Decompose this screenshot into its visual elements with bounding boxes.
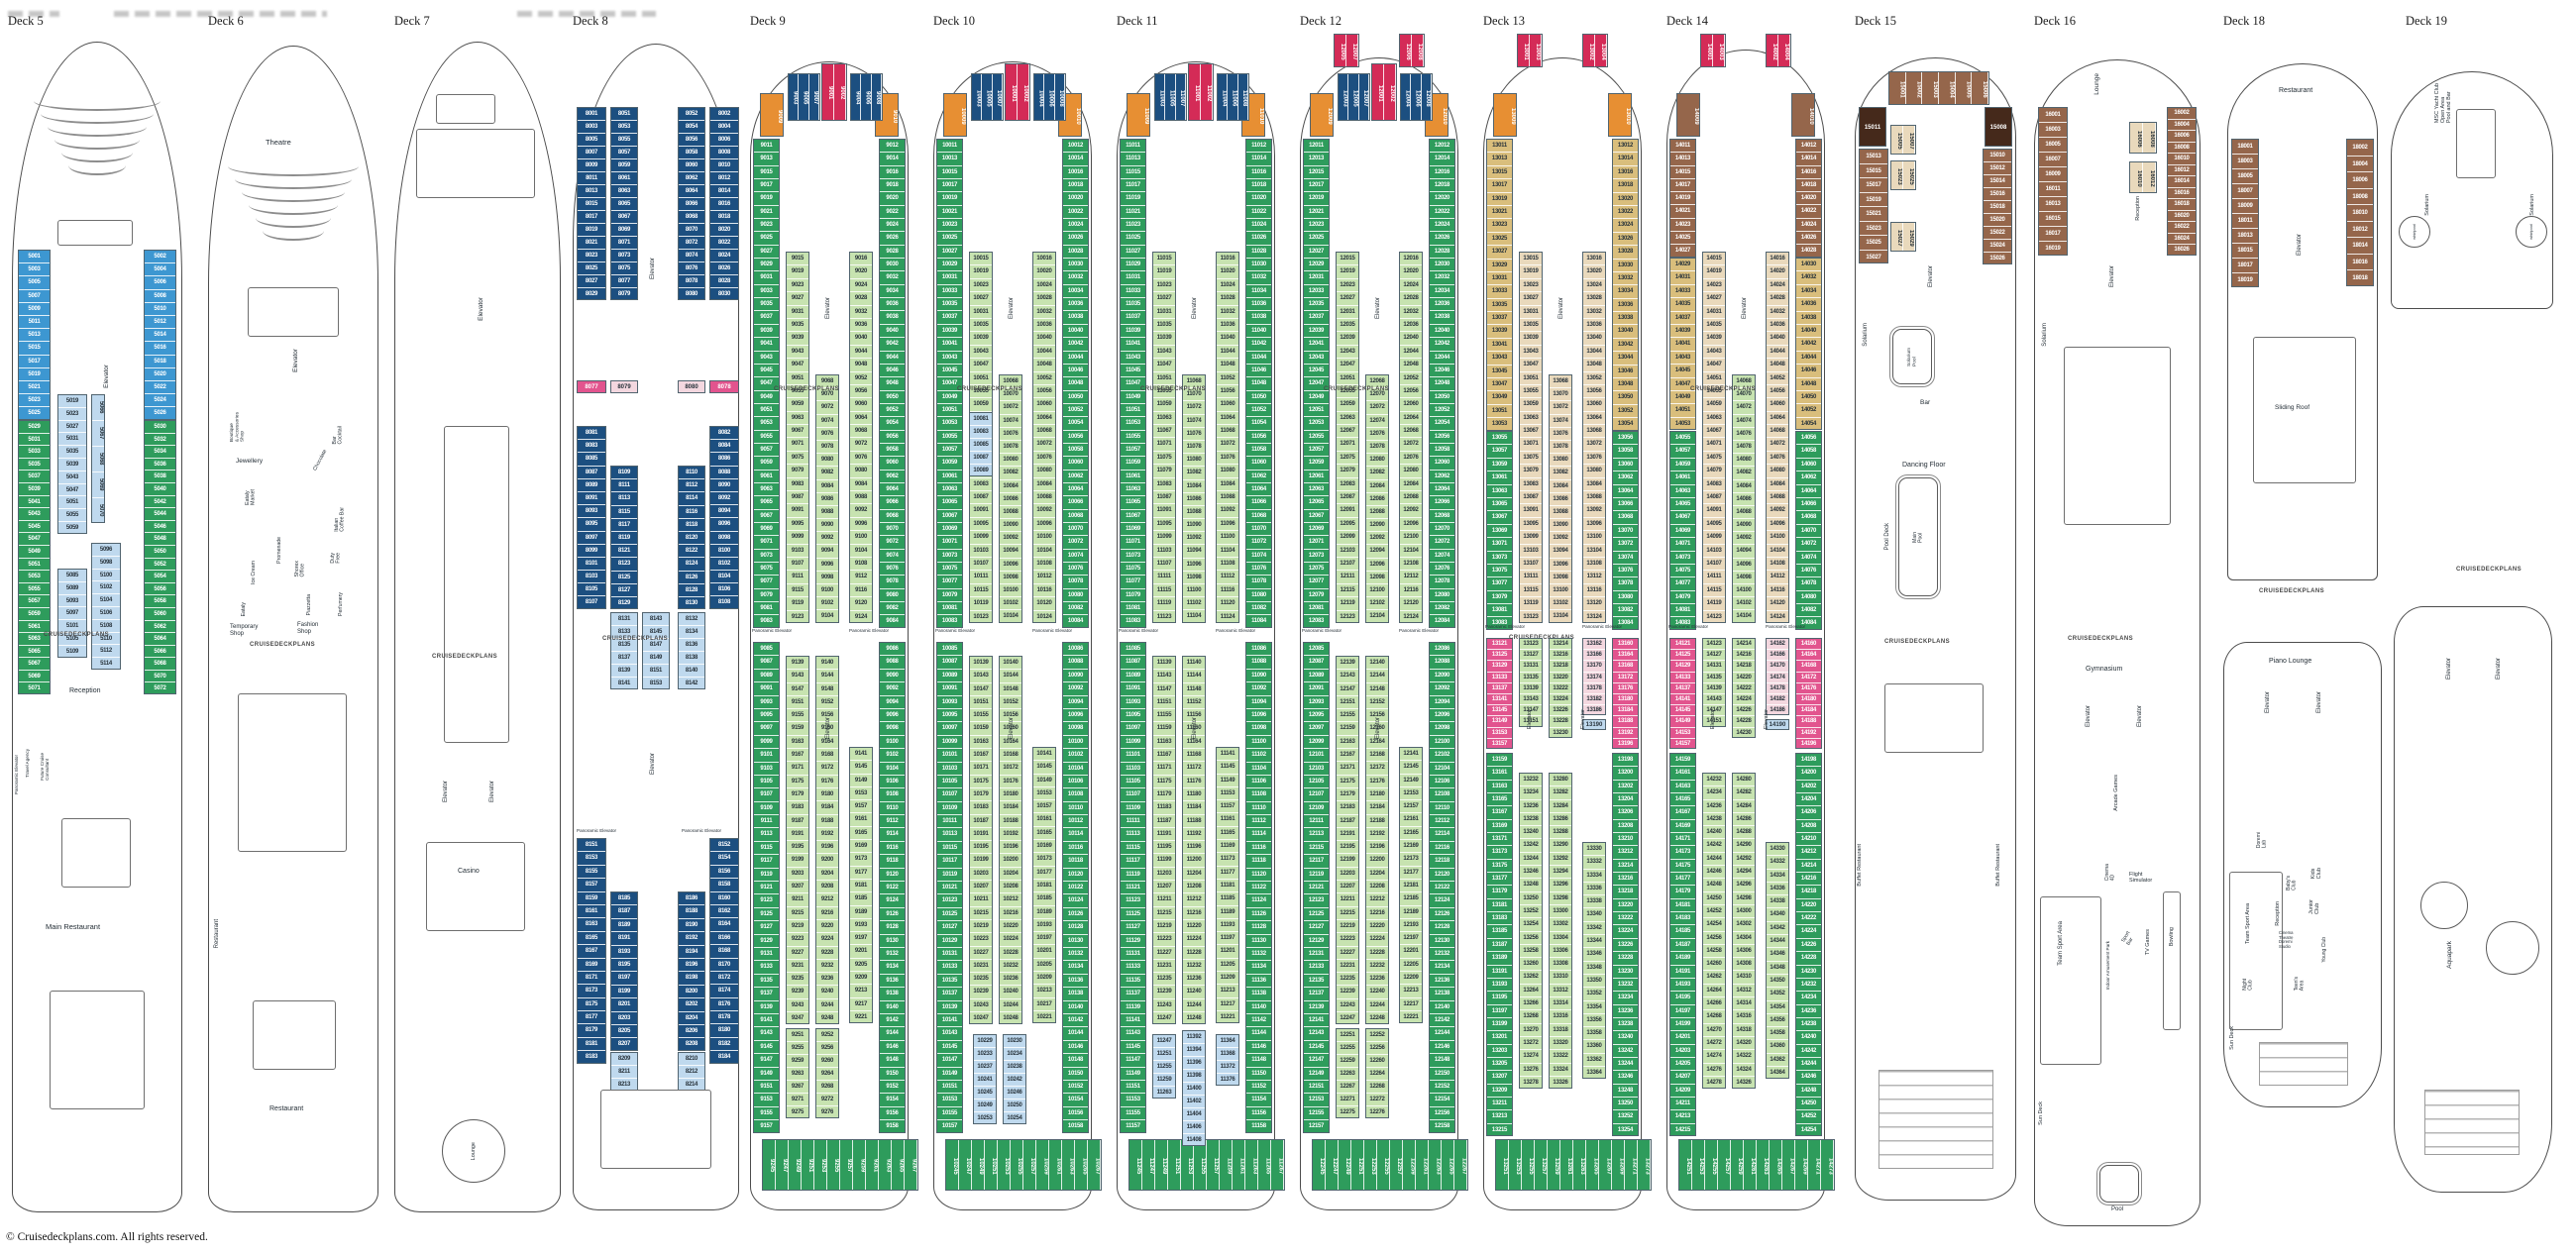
deck-12-cabin: 12009 bbox=[1310, 93, 1334, 137]
deck-10-area-label: Panoramic Elevator bbox=[1032, 628, 1072, 633]
deck-19-round-structure: whirlpool bbox=[2516, 216, 2547, 248]
deck-9-cabin: 9073 bbox=[754, 550, 779, 563]
deck-10-cabin: 10087 bbox=[970, 491, 992, 504]
deck-9-cabin-strip: 9251925592599263926792719275 bbox=[786, 1028, 809, 1118]
deck-13-cabin: 13342 bbox=[1583, 922, 1605, 935]
deck-14-cabin: 14084 bbox=[1767, 478, 1788, 491]
deck-14-cabin: 14183 bbox=[1670, 912, 1695, 925]
deck-8-cabin: 8055 bbox=[611, 134, 637, 147]
deck-13-cabin: 13187 bbox=[1487, 939, 1512, 952]
deck-13-cabin: 13080 bbox=[1583, 465, 1605, 477]
deck-10-cabin: 10267 bbox=[1088, 1140, 1101, 1190]
deck-13-cabin: 13043 bbox=[1487, 352, 1512, 365]
deck-6-watermark: CRUISEDECKPLANS bbox=[250, 642, 315, 648]
deck-12-cabin: 12066 bbox=[1430, 496, 1454, 509]
deck-13-cabin: 13049 bbox=[1487, 391, 1512, 404]
deck-11-cabin: 11056 bbox=[1246, 431, 1271, 444]
deck-13-cabin: 13037 bbox=[1487, 312, 1512, 325]
deck-9-area-label: Elevator bbox=[825, 297, 832, 319]
deck-8-cabin: 8169 bbox=[578, 959, 605, 972]
deck-12-cabin: 12147 bbox=[1337, 683, 1358, 696]
deck-13-cabin: 13047 bbox=[1487, 378, 1512, 391]
deck-5-cabin: 5020 bbox=[145, 368, 175, 381]
deck-12-cabin: 12015 bbox=[1337, 253, 1358, 265]
deck-10-cabin: 10171 bbox=[970, 762, 992, 775]
deck-12-cabin: 12082 bbox=[1430, 602, 1454, 615]
deck-13-cabin: 13164 bbox=[1613, 650, 1638, 661]
copyright-footer: © Cruisedeckplans.com. All rights reserv… bbox=[6, 1231, 208, 1243]
deck-14-cabin: 14064 bbox=[1796, 485, 1821, 498]
deck-9-cabin: 9113 bbox=[754, 828, 779, 841]
deck-14-cabin-strip: 1405514057140591406114063140651406714069… bbox=[1669, 431, 1696, 630]
deck-14-cabin: 14032 bbox=[1767, 306, 1788, 319]
deck-10-cabin: 10145 bbox=[937, 1041, 962, 1054]
deck-18-cabin: 18009 bbox=[2232, 199, 2258, 214]
deck-12-cabin: 12142 bbox=[1430, 1014, 1454, 1027]
deck-13-cabin-strip: 1301213014130161301813020130221302413026… bbox=[1612, 139, 1639, 431]
deck-10-cabin: 10233 bbox=[974, 1048, 996, 1061]
deck-10-cabin-strip: 1001610020100241002810032100361004010044… bbox=[1032, 252, 1056, 623]
deck-9-cabin: 9071 bbox=[754, 536, 779, 549]
deck-10-cabin: 10155 bbox=[937, 1107, 962, 1120]
deck-11-cabin: 11177 bbox=[1217, 867, 1238, 880]
deck-8-cabin-strip: 813281348136813881408142 bbox=[678, 612, 705, 689]
deck-5-area-label: Panoramic Elevator bbox=[14, 755, 19, 794]
deck-11-cabin: 11211 bbox=[1153, 893, 1175, 906]
deck-9-cabin: 9035 bbox=[787, 319, 808, 332]
deck-14-cabin: 14038 bbox=[1796, 312, 1821, 325]
deck-14-cabin: 14052 bbox=[1796, 404, 1821, 417]
deck-6-area-label: Perfumery bbox=[339, 592, 345, 616]
deck-12-cabin: 12019 bbox=[1304, 192, 1329, 205]
deck-14-cabin-strip: 1401114013140151401714019140211402314025… bbox=[1669, 139, 1696, 258]
deck-10-cabin: 10103 bbox=[937, 763, 962, 776]
deck-10-cabin: 10023 bbox=[937, 219, 962, 232]
deck-12-cabin: 12095 bbox=[1337, 518, 1358, 531]
deck-14-cabin-strip: 1423214234142361423814240142421424414246… bbox=[1702, 773, 1726, 1089]
deck-11-cabin: 11201 bbox=[1217, 945, 1238, 958]
deck-12-cabin: 12263 bbox=[1337, 1068, 1358, 1081]
deck-14-cabin: 14063 bbox=[1703, 412, 1725, 425]
deck-11-cabin-row: 1124511247112491125111253112551125711259… bbox=[1128, 1139, 1285, 1191]
deck-10-cabin: 10188 bbox=[1000, 815, 1021, 828]
deck-11-cabin: 11247 bbox=[1153, 1012, 1175, 1024]
deck-10-cabin-strip: 10230102341023810242102461025010254 bbox=[1003, 1034, 1026, 1124]
deck-10-cabin: 10145 bbox=[1033, 761, 1055, 774]
deck-14-cabin: 14192 bbox=[1796, 728, 1821, 739]
deck-18-cabin: 18014 bbox=[2347, 238, 2373, 255]
deck-9-cabin: 9076 bbox=[816, 428, 838, 441]
deck-11-cabin: 11042 bbox=[1246, 338, 1271, 351]
deck-11-cabin: 11223 bbox=[1153, 933, 1175, 946]
deck-13-cabin: 13267 bbox=[1599, 1140, 1612, 1190]
deck-9-cabin: 9145 bbox=[754, 1041, 779, 1054]
deck-9-cabin: 9126 bbox=[880, 908, 905, 921]
deck-9-cabin: 9056 bbox=[850, 385, 872, 398]
deck-15-cabin: 15010 bbox=[1984, 150, 2011, 162]
deck-13-cabin: 13019 bbox=[1520, 265, 1542, 278]
deck-13-cabin-strip: 1306813070130721307413076130781308013082… bbox=[1549, 374, 1572, 623]
deck-12-cabin: 12101 bbox=[1304, 749, 1329, 762]
deck-13-cabin: 13159 bbox=[1487, 754, 1512, 767]
deck-13-cabin-row-cells: 1325113253132551325713259132611326313265… bbox=[1496, 1140, 1651, 1190]
deck-10-cabin: 10158 bbox=[1063, 1120, 1088, 1133]
deck-11-cabin: 11209 bbox=[1217, 972, 1238, 985]
deck-8-cabin: 8004 bbox=[710, 121, 738, 134]
deck-11-cabin: 11032 bbox=[1217, 306, 1238, 319]
deck-12-cabin: 12148 bbox=[1366, 683, 1388, 696]
deck-14-cabin: 14088 bbox=[1733, 506, 1755, 519]
deck-13-cabin: 13257 bbox=[1535, 1140, 1548, 1190]
deck-10-cabin: 10109 bbox=[937, 802, 962, 815]
deck-10-cabin: 10024 bbox=[1033, 279, 1055, 292]
deck-7-area-label: Elevator bbox=[489, 781, 496, 802]
deck-8-cabin: 8108 bbox=[710, 596, 738, 608]
deck-14-cabin: 14214 bbox=[1796, 860, 1821, 873]
deck-10-cabin: 10189 bbox=[1033, 906, 1055, 919]
deck-12-cabin: 12163 bbox=[1337, 736, 1358, 749]
deck-11-cabin: 11024 bbox=[1246, 219, 1271, 232]
deck-11-cabin: 11124 bbox=[1217, 611, 1238, 624]
deck-11-cabin: 11149 bbox=[1121, 1068, 1145, 1081]
deck-5-cabin: 5006 bbox=[145, 276, 175, 289]
deck-11-cabin: 11064 bbox=[1217, 412, 1238, 425]
deck-15-cabin: 15006 bbox=[1972, 72, 1988, 104]
deck-9-cabin: 9213 bbox=[850, 985, 872, 997]
deck-14-cabin: 14060 bbox=[1767, 398, 1788, 411]
deck-12-cabin: 12184 bbox=[1366, 801, 1388, 814]
deck-14-cabin: 14080 bbox=[1767, 465, 1788, 477]
deck-12-cabin: 12035 bbox=[1337, 319, 1358, 332]
deck-9-cabin: 9086 bbox=[816, 493, 838, 506]
deck-10-cabin: 10209 bbox=[1033, 972, 1055, 985]
deck-9-cabin: 9003 bbox=[789, 74, 799, 120]
deck-8-cabin: 8090 bbox=[710, 479, 738, 492]
deck-13-cabin: 13055 bbox=[1520, 385, 1542, 398]
deck-9-cabin: 9036 bbox=[850, 319, 872, 332]
deck-12-cabin: 12099 bbox=[1337, 531, 1358, 544]
deck-11-cabin: 11392 bbox=[1183, 1031, 1205, 1044]
deck-10-cabin: 10231 bbox=[970, 960, 992, 973]
deck-9-cabin: 9220 bbox=[816, 920, 838, 933]
deck-11-cabin: 11013 bbox=[1121, 153, 1145, 165]
deck-14-cabin: 14092 bbox=[1733, 532, 1755, 545]
deck-10-cabin: 10009 bbox=[943, 93, 967, 137]
deck-14-cabin: 14197 bbox=[1670, 1005, 1695, 1018]
deck-15-cabin: 15015 bbox=[1860, 164, 1887, 179]
deck-14-cabin: 14202 bbox=[1796, 781, 1821, 793]
deck-9-cabin: 9021 bbox=[754, 206, 779, 219]
deck-14-cabin: 14079 bbox=[1670, 591, 1695, 604]
deck-5-cabin: 5031 bbox=[58, 433, 86, 446]
deck-6-area-label: Bar Cocktail bbox=[333, 426, 344, 444]
deck-13-cabin: 13310 bbox=[1550, 971, 1571, 984]
deck-9-cabin: 9219 bbox=[787, 920, 808, 933]
deck-11-cabin: 11249 bbox=[1155, 1140, 1168, 1190]
deck-13-cabin: 13261 bbox=[1560, 1140, 1573, 1190]
deck-11-cabin: 11011 bbox=[1121, 140, 1145, 153]
deck-7-round-structure: Lounge bbox=[442, 1119, 505, 1183]
deck-14-cabin: 14072 bbox=[1767, 438, 1788, 451]
deck-12-cabin: 12040 bbox=[1430, 325, 1454, 338]
deck-12-cabin: 12177 bbox=[1400, 867, 1422, 880]
deck-12-cabin-strip: 1201112013120151201712019120211202312025… bbox=[1303, 139, 1330, 628]
deck-11-cabin: 11188 bbox=[1183, 815, 1205, 828]
deck-13-cabin: 13224 bbox=[1550, 694, 1571, 705]
deck-12-cabin: 12084 bbox=[1430, 615, 1454, 628]
deck-8-cabin: 8065 bbox=[611, 198, 637, 211]
deck-9-cabin: 9100 bbox=[880, 736, 905, 749]
deck-12-cabin: 12104 bbox=[1430, 763, 1454, 776]
deck-13-cabin-strip: 1312113125131291313313137131411314513149… bbox=[1486, 638, 1513, 749]
deck-13-cabin: 13204 bbox=[1613, 793, 1638, 806]
deck-13-cabin: 13133 bbox=[1487, 673, 1512, 683]
deck-13-cabin: 13362 bbox=[1583, 1054, 1605, 1067]
deck-10-cabin: 10104 bbox=[1033, 545, 1055, 558]
deck-13-cabin: 13011 bbox=[1487, 140, 1512, 153]
deck-9-cabin: 9118 bbox=[880, 855, 905, 868]
deck-10-cabin: 10038 bbox=[1063, 311, 1088, 324]
deck-13-cabin: 13145 bbox=[1487, 705, 1512, 716]
deck-12-cabin: 12197 bbox=[1400, 932, 1422, 945]
deck-12-area-label: Panoramic Elevator bbox=[1302, 628, 1342, 633]
deck-18-area-label: Baby's Club bbox=[2287, 876, 2298, 890]
deck-16-area-label: Team Sport Area bbox=[2058, 921, 2065, 966]
deck-12-cabin: 12100 bbox=[1366, 584, 1388, 597]
deck-5-structure bbox=[57, 220, 133, 246]
deck-12-cabin: 12124 bbox=[1400, 611, 1422, 624]
deck-13-cabin: 13047 bbox=[1520, 359, 1542, 371]
deck-13-cabin: 13019 bbox=[1487, 193, 1512, 206]
deck-10-area-label: Elevator bbox=[1009, 297, 1016, 319]
deck-10-cabin: 10069 bbox=[937, 523, 962, 536]
deck-10-cabin: 10253 bbox=[998, 1140, 1011, 1190]
deck-13-cabin: 13302 bbox=[1550, 918, 1571, 931]
deck-13-cabin: 13071 bbox=[1487, 538, 1512, 551]
deck-9-cabin: 9183 bbox=[787, 801, 808, 814]
deck-5-cabin: 5051 bbox=[58, 496, 86, 509]
deck-11-cabin: 11215 bbox=[1153, 907, 1175, 920]
deck-13-cabin: 13059 bbox=[1487, 459, 1512, 471]
deck-8-cabin: 8191 bbox=[611, 932, 637, 945]
deck-8-cabin: 8062 bbox=[679, 172, 704, 185]
deck-10-cabin: 10150 bbox=[1063, 1068, 1088, 1081]
deck-14-cabin: 14310 bbox=[1733, 971, 1755, 984]
deck-14-cabin: 14111 bbox=[1703, 571, 1725, 583]
deck-9-cabin-strip: 9068907090729074907690789080908290849086… bbox=[815, 374, 839, 623]
deck-13-cabin: 13228 bbox=[1550, 716, 1571, 727]
deck-10-cabin: 10048 bbox=[1033, 359, 1055, 371]
deck-13-cabin: 13013 bbox=[1487, 153, 1512, 165]
deck-12-cabin: 12122 bbox=[1430, 882, 1454, 894]
deck-13-cabin: 13051 bbox=[1520, 372, 1542, 385]
deck-13-cabin-row-cells: 1300113003 bbox=[1518, 35, 1542, 66]
deck-8-cabin: 8073 bbox=[611, 250, 637, 262]
deck-8-cabin: 8086 bbox=[710, 453, 738, 466]
deck-8-cabin: 8104 bbox=[710, 571, 738, 583]
deck-13-cabin: 13096 bbox=[1583, 518, 1605, 531]
deck-14-cabin: 14044 bbox=[1767, 346, 1788, 359]
deck-13-cabin: 13015 bbox=[1520, 253, 1542, 265]
deck-11-cabin: 11060 bbox=[1246, 457, 1271, 470]
deck-18-cabin: 18018 bbox=[2347, 270, 2373, 286]
deck-11-area-label: Panoramic Elevator bbox=[1216, 628, 1255, 633]
deck-11-cabin: 11102 bbox=[1246, 749, 1271, 762]
deck-8-cabin: 8176 bbox=[710, 998, 738, 1011]
deck-9-cabin: 9138 bbox=[880, 988, 905, 1000]
deck-8-cabin: 8138 bbox=[679, 652, 704, 665]
deck-11-cabin-strip: 1124711251112551125911263 bbox=[1152, 1034, 1176, 1099]
deck-14-cabin: 14028 bbox=[1796, 245, 1821, 257]
deck-11-cabin: 11217 bbox=[1217, 998, 1238, 1011]
deck-11-cabin: 11084 bbox=[1183, 480, 1205, 493]
deck-12-cabin: 12095 bbox=[1304, 709, 1329, 722]
deck-10-cabin: 10237 bbox=[974, 1061, 996, 1074]
deck-8-cabin-strip: 814381458147814981518153 bbox=[642, 612, 670, 689]
deck-10-cabin: 10080 bbox=[1000, 454, 1021, 467]
deck-14-cabin: 14218 bbox=[1796, 886, 1821, 898]
deck-13-cabin: 13358 bbox=[1583, 1027, 1605, 1040]
deck-11-cabin: 11142 bbox=[1246, 1014, 1271, 1027]
deck-10-cabin: 10078 bbox=[1063, 576, 1088, 588]
deck-8-cabin: 8010 bbox=[710, 159, 738, 172]
deck-13-cabin: 13230 bbox=[1613, 966, 1638, 979]
deck-6-area-label: Temporary Shop bbox=[230, 624, 258, 637]
deck-8-cabin: 8080 bbox=[679, 288, 704, 300]
deck-11-cabin: 11147 bbox=[1153, 683, 1175, 696]
deck-11-cabin: 11155 bbox=[1153, 709, 1175, 722]
deck-11-cabin: 11129 bbox=[1121, 935, 1145, 948]
deck-9-cabin: 9008 bbox=[872, 74, 882, 120]
deck-12-cabin: 12051 bbox=[1304, 404, 1329, 417]
deck-5-cabin: 5045 bbox=[19, 521, 50, 534]
deck-13-cabin: 13278 bbox=[1520, 1077, 1542, 1089]
deck-12-cabin: 12078 bbox=[1366, 441, 1388, 454]
deck-10-cabin: 10246 bbox=[1004, 1087, 1025, 1100]
deck-11-cabin: 11083 bbox=[1121, 615, 1145, 628]
deck-13-cabin: 13248 bbox=[1613, 1085, 1638, 1098]
deck-12-cabin: 12117 bbox=[1304, 855, 1329, 868]
deck-10-cabin: 10085 bbox=[937, 643, 962, 656]
deck-14-cabin: 14149 bbox=[1670, 716, 1695, 727]
deck-5-cabin: 5019 bbox=[58, 395, 86, 408]
deck-10-cabin: 10089 bbox=[937, 670, 962, 682]
deck-14-cabin: 14056 bbox=[1767, 385, 1788, 398]
deck-9-cabin: 9075 bbox=[787, 452, 808, 465]
deck-10-cabin: 10187 bbox=[970, 815, 992, 828]
deck-14-cabin: 14230 bbox=[1796, 966, 1821, 979]
deck-10-cabin: 10005 bbox=[982, 74, 992, 120]
deck-10-cabin: 10088 bbox=[1033, 491, 1055, 504]
deck-9-cabin: 9024 bbox=[880, 219, 905, 232]
deck-15-cabin: 15029 bbox=[1903, 223, 1915, 251]
deck-9-cabin: 9167 bbox=[787, 749, 808, 762]
deck-14-cabin: 14143 bbox=[1703, 694, 1725, 705]
deck-11-cabin: 11183 bbox=[1153, 801, 1175, 814]
deck-6-structure bbox=[238, 693, 347, 852]
deck-5-structure bbox=[50, 991, 145, 1109]
deck-13-cabin: 13181 bbox=[1487, 899, 1512, 912]
deck-13-cabin: 13192 bbox=[1613, 728, 1638, 739]
deck-13-cabin: 13092 bbox=[1583, 504, 1605, 517]
deck-11-cabin: 11035 bbox=[1153, 319, 1175, 332]
deck-10-cabin: 10111 bbox=[937, 815, 962, 828]
deck-16-area-label: Pool bbox=[2111, 1206, 2123, 1213]
deck-9-cabin: 9177 bbox=[850, 867, 872, 880]
deck-12-cabin: 12145 bbox=[1400, 761, 1422, 774]
deck-9-cabin: 9127 bbox=[754, 921, 779, 934]
deck-8-cabin: 8025 bbox=[578, 262, 605, 275]
deck-9-cabin: 9084 bbox=[880, 615, 905, 628]
deck-14-cabin: 14248 bbox=[1796, 1085, 1821, 1098]
deck-5-cabin: 5059 bbox=[58, 522, 86, 534]
deck-10-cabin: 10022 bbox=[1063, 206, 1088, 219]
deck-11-cabin: 11232 bbox=[1183, 960, 1205, 973]
deck-13-cabin: 13048 bbox=[1583, 359, 1605, 371]
deck-9-cabin: 9012 bbox=[880, 140, 905, 153]
deck-12-cabin: 12072 bbox=[1400, 438, 1422, 451]
deck-16-cabin-strip: 1600116003160051600716009160111601316015… bbox=[2038, 107, 2068, 256]
deck-13-area-label: Elevator bbox=[1580, 709, 1586, 729]
deck-13-cabin: 13356 bbox=[1583, 1014, 1605, 1027]
deck-11-cabin: 11208 bbox=[1183, 881, 1205, 893]
deck-9-cabin-row: 9245924792499251925392559257925992619263… bbox=[762, 1139, 918, 1191]
deck-12-cabin: 12050 bbox=[1430, 391, 1454, 404]
deck-12-cabin: 12027 bbox=[1304, 246, 1329, 259]
deck-5-label: Deck 5 bbox=[8, 14, 44, 29]
deck-9-cabin: 9180 bbox=[816, 788, 838, 801]
deck-9-cabin: 9276 bbox=[816, 1106, 838, 1118]
deck-9-cabin: 9031 bbox=[787, 306, 808, 319]
deck-10-cabin: 10007 bbox=[993, 74, 1003, 120]
deck-12-cabin: 12151 bbox=[1304, 1081, 1329, 1094]
deck-14-cabin: 14120 bbox=[1767, 597, 1788, 610]
deck-8-cabin: 8123 bbox=[611, 558, 637, 571]
deck-11-cabin-strip: 1113911143111471115111155111591116311167… bbox=[1152, 656, 1176, 1024]
deck-13-cabin: 13183 bbox=[1487, 912, 1512, 925]
deck-12-cabin: 12079 bbox=[1337, 465, 1358, 477]
deck-13-cabin: 13330 bbox=[1583, 843, 1605, 856]
deck-9-cabin: 9187 bbox=[787, 815, 808, 828]
deck-10-cabin: 10123 bbox=[970, 611, 992, 624]
deck-10-cabin: 10129 bbox=[937, 935, 962, 948]
deck-13-cabin: 13244 bbox=[1520, 853, 1542, 866]
deck-12-cabin: 12259 bbox=[1403, 1140, 1416, 1190]
deck-9-cabin: 9031 bbox=[754, 271, 779, 284]
deck-9-cabin: 9044 bbox=[880, 352, 905, 365]
deck-10-cabin: 10062 bbox=[1063, 471, 1088, 483]
deck-14-cabin: 14065 bbox=[1670, 498, 1695, 511]
deck-12-cabin: 12152 bbox=[1366, 696, 1388, 709]
deck-14-cabin: 14072 bbox=[1796, 538, 1821, 551]
deck-13-cabin: 13057 bbox=[1487, 445, 1512, 458]
deck-13-cabin: 13186 bbox=[1583, 705, 1605, 715]
deck-14-cabin: 14204 bbox=[1796, 793, 1821, 806]
deck-13-cabin: 13024 bbox=[1583, 279, 1605, 292]
deck-12-area-label: Panoramic Elevator bbox=[1399, 628, 1439, 633]
deck-16-cabin: 16022 bbox=[2168, 222, 2196, 234]
deck-9-cabin: 9140 bbox=[880, 1001, 905, 1014]
deck-12-cabin: 12007 bbox=[1346, 35, 1358, 66]
deck-14-cabin: 14354 bbox=[1767, 1001, 1788, 1014]
deck-11-cabin: 11263 bbox=[1153, 1087, 1175, 1099]
deck-10-cabin: 10215 bbox=[970, 907, 992, 920]
deck-12-cabin: 12034 bbox=[1430, 285, 1454, 298]
deck-14-watermark: CRUISEDECKPLANS bbox=[1690, 386, 1756, 392]
deck-12-cabin: 12153 bbox=[1304, 1094, 1329, 1106]
deck-10-cabin: 10104 bbox=[1063, 763, 1088, 776]
deck-9-cabin: 9051 bbox=[754, 404, 779, 417]
